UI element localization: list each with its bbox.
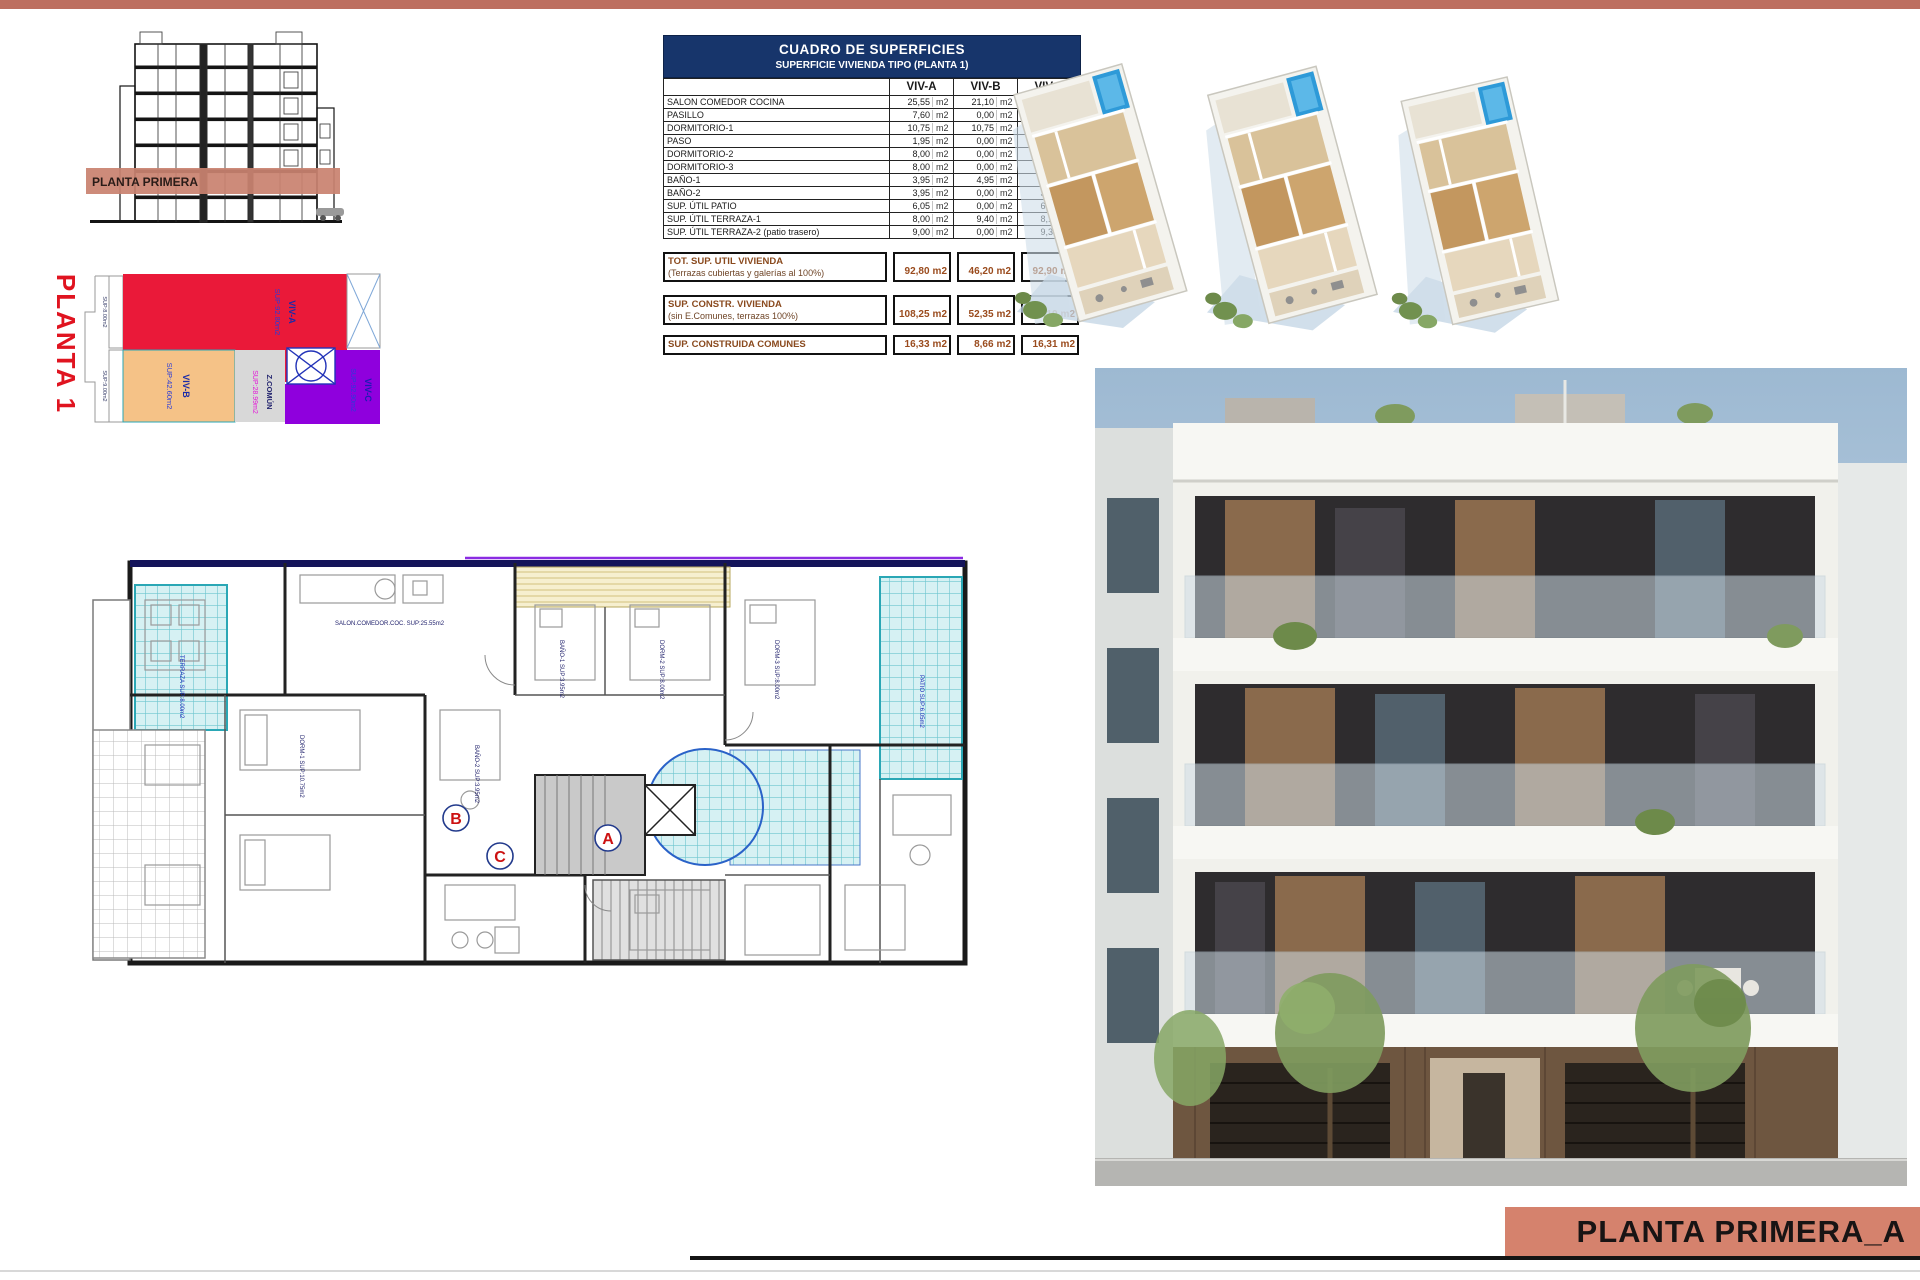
row-label: SUP. ÚTIL TERRAZA-2 (patio trasero) [664,226,890,239]
row-value-a: 7,60m2 [890,109,954,122]
room-label-terraza: TERRAZA SUP:8.00m2 [178,655,184,719]
corner-cell [664,79,890,96]
zone-viv-a [123,274,347,350]
colored-plan-title: PLANTA 1 [51,274,81,414]
common-a: 16,33m2 [893,335,951,355]
total-util-sublabel: (Terrazas cubiertas y galerías al 100%) [668,268,882,278]
room-label-dorm1: DORM-1 SUP:10.75m2 [298,735,304,798]
row-label: SUP. ÚTIL TERRAZA-1 [664,213,890,226]
unit-marker-c: C [487,843,513,869]
row-value-a: 10,75m2 [890,122,954,135]
row-label: PASILLO [664,109,890,122]
zone-comun-sup: SUP:28.99m2 [251,370,258,414]
aerial-render-3 [1388,71,1570,336]
terrace-left-bottom [109,350,123,422]
zone-viv-b-sup: SUP:42.60m2 [165,363,174,410]
row-value-a: 25,55m2 [890,96,954,109]
svg-text:A: A [602,831,614,848]
title-block-line [690,1256,1920,1260]
zone-viv-c-label: VIV-C [363,378,373,402]
row-label: SUP. ÚTIL PATIO [664,200,890,213]
street [1095,1158,1907,1186]
room-label-dorm2: DORM-2 SUP:8.00m2 [658,640,664,700]
common-label: SUP. CONSTRUIDA COMUNES [668,339,882,351]
common-label-box: SUP. CONSTRUIDA COMUNES [663,335,887,355]
section-outline [135,44,317,222]
row-value-a: 3,95m2 [890,174,954,187]
unit-marker-b: B [443,805,469,831]
section-right-annex [317,108,334,222]
side-label-2: SUP:9.00m2 [101,370,107,401]
colored-zone-plan: PLANTA 1 VIV-A SUP:92.80m2 VIV-B SUP:42.… [35,252,395,432]
svg-text:B: B [450,811,462,828]
zone-comun [235,350,285,422]
zone-viv-b-label: VIV-B [181,374,191,398]
planta-primera-band-label: PLANTA PRIMERA [92,175,198,189]
row-value-a: 8,00m2 [890,148,954,161]
constructed-label: SUP. CONSTR. VIVIENDA [668,299,882,311]
row-value-a: 1,95m2 [890,135,954,148]
plate-title-box: PLANTA PRIMERA_A [1505,1207,1920,1257]
room-label-dorm3: DORM-3 SUP:8.00m2 [773,640,779,700]
parapet [1173,423,1838,481]
constructed-sublabel: (sin E.Comunes, terrazas 100%) [668,311,882,321]
row-value-a: 9,00m2 [890,226,954,239]
stairs-bottom [593,880,725,960]
terrace-right-x [347,274,380,348]
row-label: DORMITORIO-1 [664,122,890,135]
room-label-salon: SALON.COMEDOR.COC. SUP:25.55m2 [335,621,445,627]
room-label-patio: PATIO SUP:6.05m2 [918,675,924,728]
balcony-plant [1767,624,1803,648]
col-viv-a: VIV-A [890,79,954,96]
slab-2 [1173,826,1838,859]
row-label: BAÑO-1 [664,174,890,187]
row-value-a: 8,00m2 [890,161,954,174]
terrace-left-top [109,276,123,348]
constructed-label-box: SUP. CONSTR. VIVIENDA (sin E.Comunes, te… [663,295,887,325]
zone-viv-a-label: VIV-A [287,300,297,324]
total-util-a: 92,80m2 [893,252,951,282]
total-util-label: TOT. SUP. UTIL VIVIENDA [668,256,882,268]
table-title: CUADRO DE SUPERFICIES [664,36,1080,60]
slab-3 [1173,638,1838,671]
zone-viv-c-sup: SUP:92.90m2 [349,368,356,412]
row-label: PASO [664,135,890,148]
stair-elevator-icon [287,348,335,384]
side-label-1: SUP:8.00m2 [101,296,107,327]
balcony-plant [1273,622,1317,650]
sheet-bottom-line [0,1270,1920,1272]
building-section-drawing: PLANTA PRIMERA [80,28,355,240]
zone-viv-a-sup: SUP:92.80m2 [273,289,282,336]
top-accent-bar [0,0,1920,9]
car-sketch [316,208,344,221]
facade-render [1095,368,1907,1186]
zone-viv-b [123,350,235,422]
row-label: DORMITORIO-3 [664,161,890,174]
room-label-bano2: BAÑO-2 SUP:3.95m2 [473,745,480,804]
zone-comun-label: Z.COMÚN [265,375,274,410]
row-value-a: 6,05m2 [890,200,954,213]
plate-title: PLANTA PRIMERA_A [1577,1214,1906,1250]
aerial-render-1 [1013,64,1187,328]
glass-balustrade-2 [1185,764,1825,826]
svg-text:C: C [494,849,506,866]
section-core-hatch [158,44,302,222]
patio-tiles-left [93,730,205,958]
row-label: BAÑO-2 [664,187,890,200]
floor-plan: SALON.COMEDOR.COC. SUP:25.55m2 DORM-1 SU… [85,545,990,977]
row-label: DORMITORIO-2 [664,148,890,161]
entrance-door [1463,1073,1505,1158]
constructed-a: 108,25m2 [893,295,951,325]
aerial-render-2 [1203,64,1381,331]
drawing-sheet: PLANTA PRIMERA PLANTA 1 VIV-A SUP:92.80m… [0,0,1920,1280]
balcony-plant [1635,809,1675,835]
unit-marker-a: A [595,825,621,851]
awning-hatch [515,567,730,607]
neighbor-building-right [1838,463,1907,1158]
top-structural-wall [130,560,965,567]
row-value-a: 3,95m2 [890,187,954,200]
row-value-a: 8,00m2 [890,213,954,226]
floors [1173,496,1838,1047]
section-left-annex [120,86,135,222]
total-util-label-box: TOT. SUP. UTIL VIVIENDA (Terrazas cubier… [663,252,887,282]
row-label: SALON COMEDOR COCINA [664,96,890,109]
room-label-bano1: BAÑO-1 SUP:3.95m2 [558,640,565,699]
aerial-renders [1005,60,1585,340]
